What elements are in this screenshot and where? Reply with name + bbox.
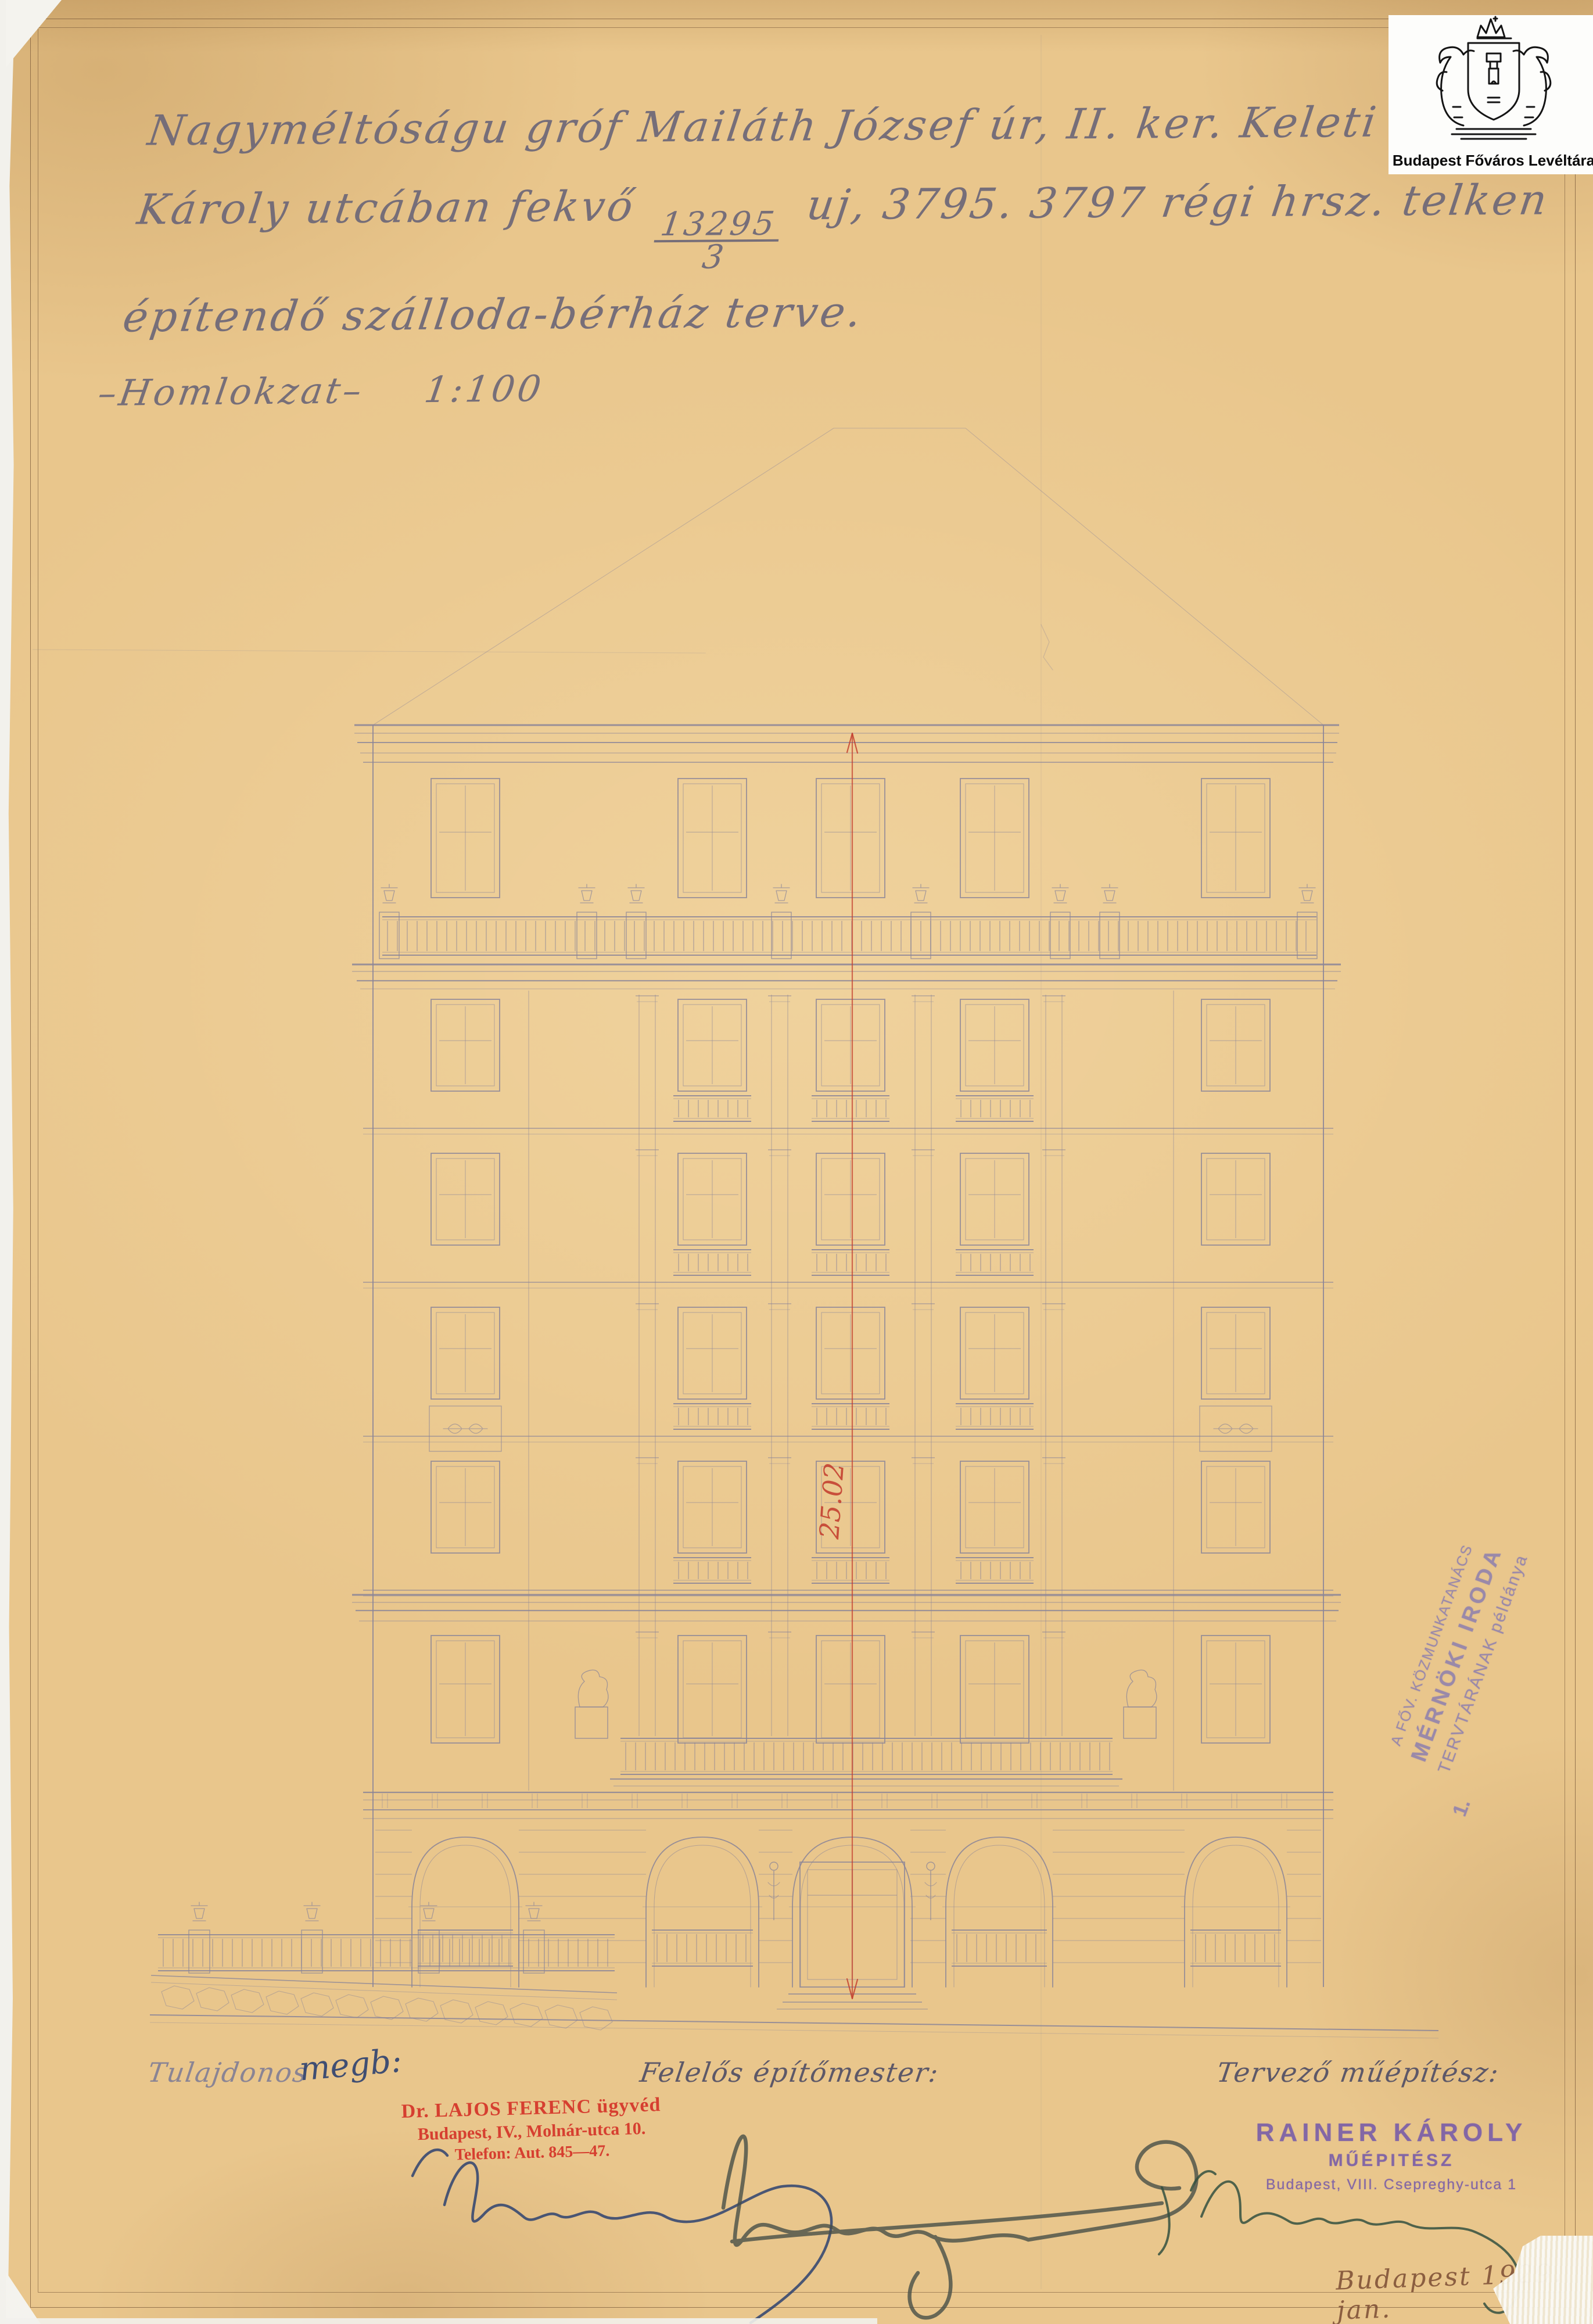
architect-stamp: RAINER KÁROLY MŰÉPITÉSZ Budapest, VIII. … [1240, 2118, 1542, 2193]
title-line-1: Nagyméltóságu gróf Mailáth József úr, II… [143, 81, 1565, 170]
archive-logo-label: Budapest Főváros Levéltára [1389, 152, 1593, 170]
architect-stamp-name: RAINER KÁROLY [1240, 2118, 1542, 2147]
date-note: Budapest 1929. jan. [1335, 2257, 1593, 2324]
archive-logo: Budapest Főváros Levéltára [1389, 15, 1593, 174]
lot-number-fraction: 132953 [650, 209, 783, 274]
facade-upper [352, 725, 1341, 1987]
title-block: Nagyméltóságu gróf Mailáth József úr, II… [118, 81, 1565, 357]
architect-stamp-address: Budapest, VIII. Csepreghy-utca 1 [1240, 2176, 1542, 2193]
builder-label: Felelős építőmester: [638, 2057, 941, 2088]
lawyer-stamp: Dr. LAJOS FERENC ügyvéd Budapest, IV., M… [328, 2092, 736, 2168]
height-dimension-value: 25.02 [813, 1462, 850, 1541]
architect-stamp-title: MŰÉPITÉSZ [1240, 2151, 1542, 2171]
title-line-2-post: uj, 3795. 3797 régi hrsz. telken [804, 175, 1552, 229]
title-line-3: építendő szálloda-bérház terve. [118, 267, 1540, 356]
coat-of-arms-icon [1389, 15, 1593, 146]
title-line-2-pre: Károly utcában fekvő [134, 182, 638, 234]
scanned-document: 25.02 Nagyméltóságu gróf Mailáth József … [0, 0, 1593, 2324]
facade-label: –Homlokzat– [95, 369, 367, 414]
architect-label: Tervező műépítész: [1215, 2057, 1501, 2088]
title-line-2: Károly utcában fekvő 132953 uj, 3795. 37… [129, 160, 1555, 278]
height-dimension: 25.02 [813, 733, 858, 1999]
drawing-label: –Homlokzat– 1:100 [95, 367, 547, 414]
owner-label: Tulajdonos [146, 2057, 310, 2088]
street-and-retaining-wall [150, 1902, 1438, 2038]
paper-sheet: 25.02 Nagyméltóságu gróf Mailáth József … [6, 0, 1593, 2324]
ground-floor-arcade [363, 1792, 1333, 2009]
scale-label: 1:100 [422, 367, 547, 411]
